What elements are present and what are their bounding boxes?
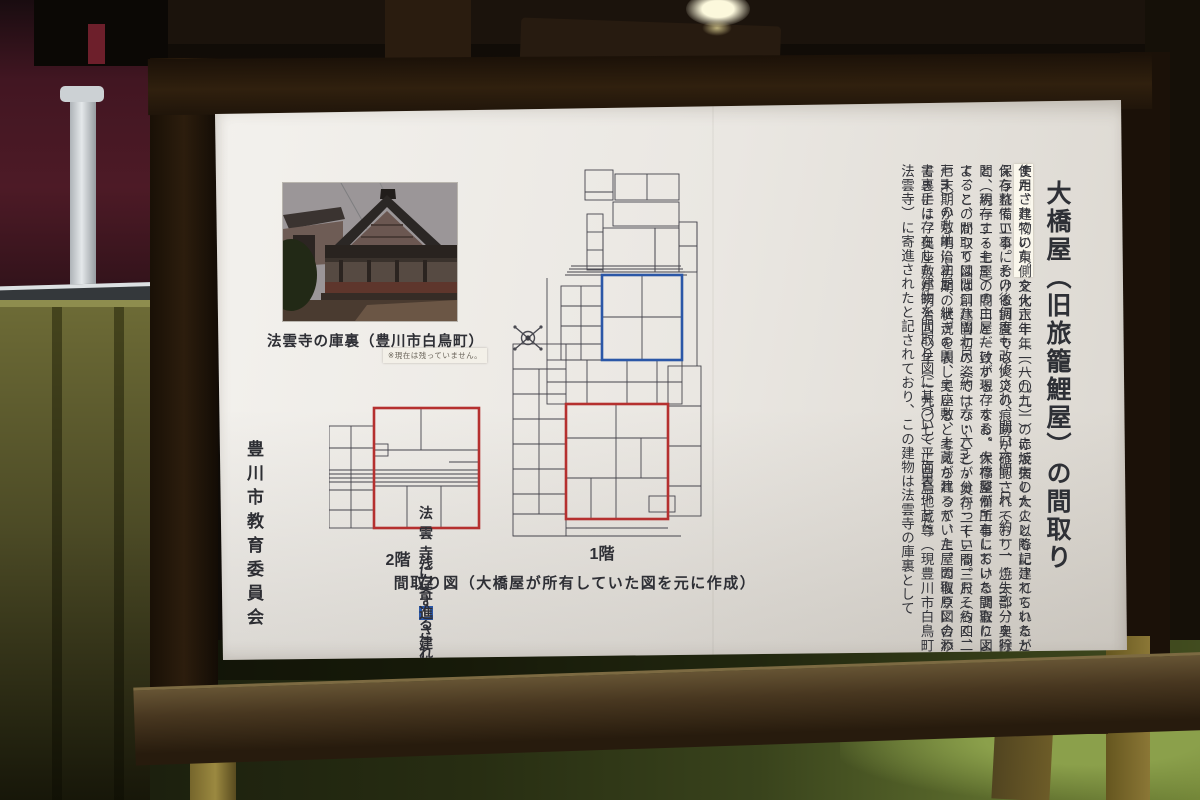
organization-name: 豊川市教育委員会 <box>241 440 266 650</box>
background-red-post <box>88 24 105 64</box>
kuri-photo <box>282 182 458 322</box>
sunlight-gap-small <box>702 20 732 36</box>
kuri-photo-drawing <box>283 183 457 321</box>
sign-panel: 大橋屋（旧旅籠鯉屋）の間取り 大橋屋建物は、文化六年（一八〇九）の赤坂宿の大火以… <box>215 100 1127 660</box>
photo-of-information-signboard: 大橋屋（旧旅籠鯉屋）の間取り 大橋屋建物は、文化六年（一八〇九）の赤坂宿の大火以… <box>0 0 1200 800</box>
body-text-part2: また、建物の東側を大正十年（一九二一）に焼失したことも記されているが、保存整備工… <box>916 164 1033 667</box>
sign-frame-right-post <box>1120 52 1170 682</box>
background-drain-pipe <box>70 92 96 312</box>
photo-note-label: ※現在は残っていません。 <box>383 348 487 363</box>
floor-plan-2f-drawing <box>329 386 485 544</box>
floor-plan-1f-drawing <box>511 166 705 542</box>
sign-frame-left-post <box>150 58 218 758</box>
sign-title: 大橋屋（旧旅籠鯉屋）の間取り <box>1039 180 1075 610</box>
background-pipe-bracket <box>60 86 104 102</box>
floor2-label: 2階 <box>343 546 453 570</box>
floor1-label: 1階 <box>547 540 657 564</box>
